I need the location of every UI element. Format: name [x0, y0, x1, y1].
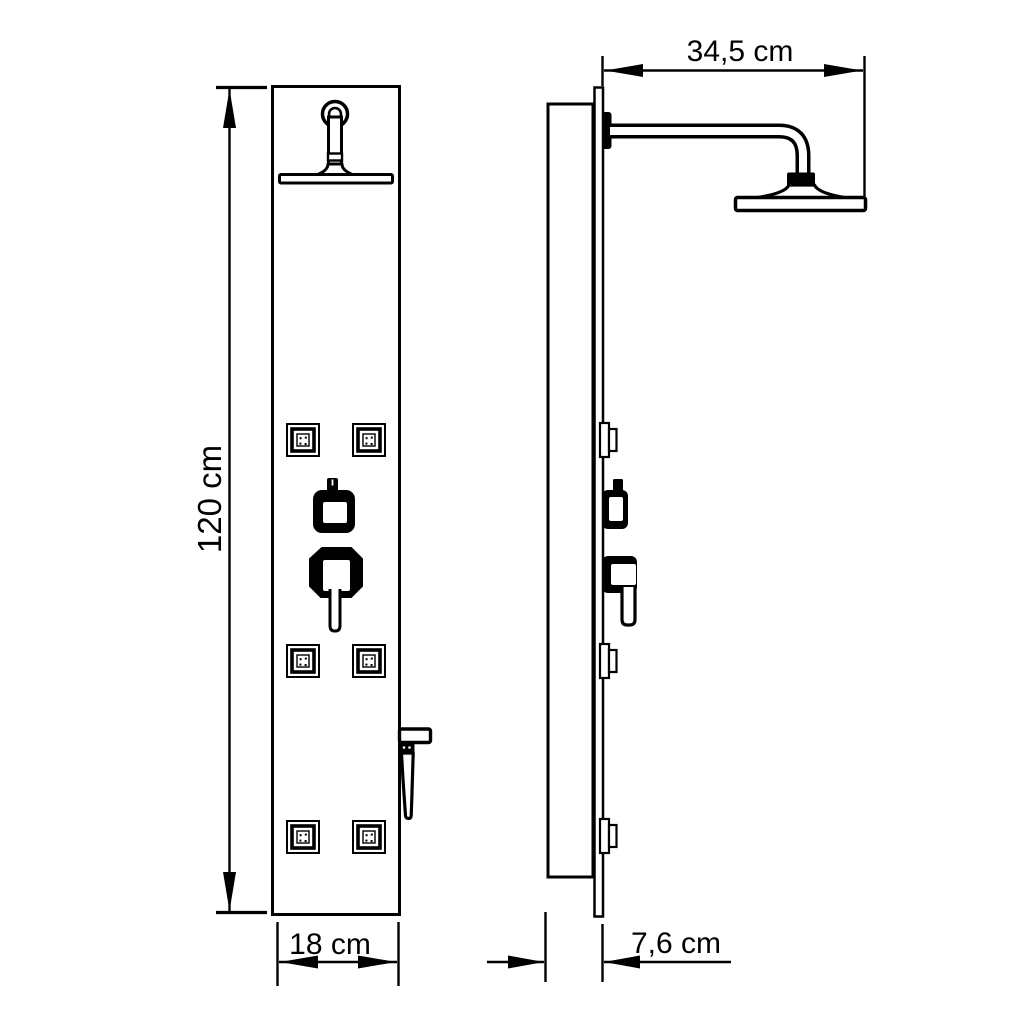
- arrowhead-right-icon: [508, 956, 544, 969]
- mixer-window-side: [611, 564, 636, 585]
- body-jet: [287, 645, 319, 677]
- front-view: [273, 87, 431, 915]
- hand-shower-head: [400, 729, 431, 743]
- rain-shower-arm-side: [602, 112, 866, 211]
- diverter-window: [323, 502, 347, 523]
- hand-shower-front: [400, 729, 431, 819]
- mixer-lever: [330, 589, 340, 631]
- dimension-label: 18 cm: [289, 928, 371, 961]
- mixer-window: [323, 560, 350, 591]
- arrowhead-down-icon: [223, 872, 236, 911]
- dimension-label: 7,6 cm: [631, 927, 721, 960]
- mixer-knob-side: [602, 556, 637, 625]
- diverter-window-side: [609, 497, 623, 521]
- wall-bracket-side: [548, 104, 593, 877]
- rain-shower-head-front: [280, 175, 393, 184]
- arm-collar-nut: [328, 154, 342, 161]
- joint-dot-icon: [408, 746, 411, 749]
- depth-dimension: 7,6 cm: [487, 912, 731, 982]
- body-jet-side: [600, 819, 617, 853]
- dimension-label: 120 cm: [191, 445, 228, 553]
- body-jet: [287, 424, 319, 456]
- joint-dot-icon: [403, 746, 406, 749]
- arrowhead-up-icon: [223, 89, 236, 128]
- height-dimension: 120 cm: [191, 88, 267, 913]
- diverter-knob-side: [602, 479, 628, 529]
- body-jet: [353, 645, 385, 677]
- hand-shower-handle: [402, 753, 414, 819]
- arrowhead-left-icon: [605, 64, 643, 77]
- arm-pipe-outline: [610, 131, 803, 174]
- dimension-label: 34,5 cm: [687, 35, 794, 68]
- body-jet-side: [600, 644, 617, 678]
- mixer-lever-side: [622, 587, 635, 625]
- rain-shower-head-side: [736, 198, 866, 211]
- body-jet: [287, 821, 319, 853]
- diagram-drawing: 120 cm 18 cm 34,5 cm 7,6 cm: [0, 0, 1024, 1024]
- shower-panel-dimension-diagram: 120 cm 18 cm 34,5 cm 7,6 cm: [0, 0, 1024, 1024]
- width-dimension: 18 cm: [278, 922, 399, 986]
- body-jet-side: [600, 423, 617, 457]
- panel-outline-side: [595, 88, 604, 917]
- diverter-stub-notch: [332, 480, 334, 486]
- side-view: [548, 88, 866, 917]
- arm-reach-dimension: 34,5 cm: [603, 35, 865, 196]
- body-jet: [353, 821, 385, 853]
- body-jet: [353, 424, 385, 456]
- arrowhead-right-icon: [824, 64, 862, 77]
